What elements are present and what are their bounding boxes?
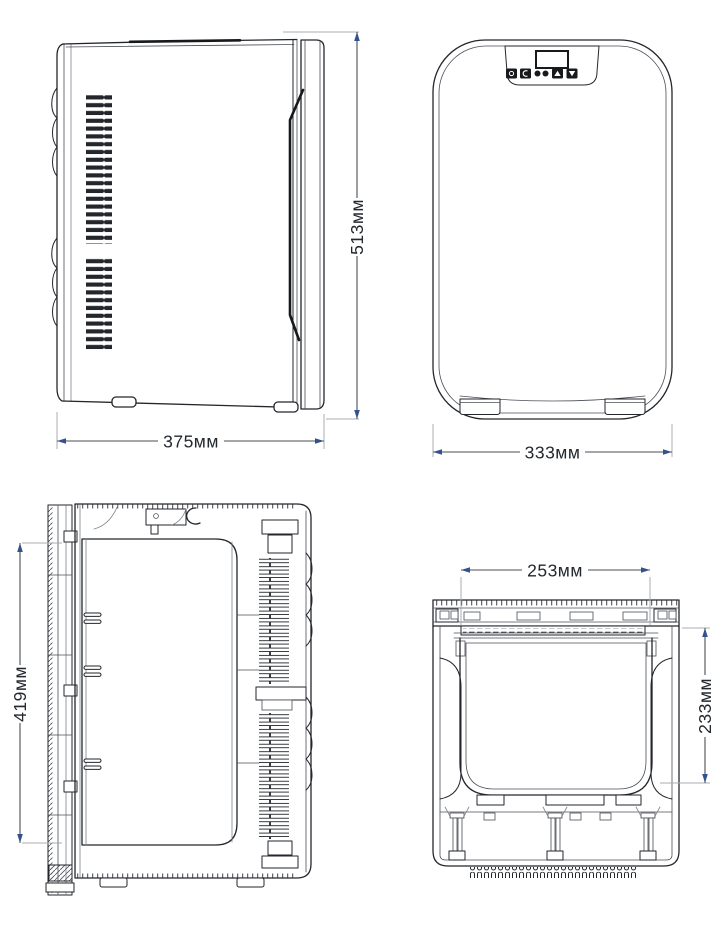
section-body [46, 504, 312, 895]
foot-right [605, 399, 645, 415]
hinge-bumps-top [52, 88, 57, 176]
latch-mechanism [94, 505, 200, 534]
vent-comb-teeth [470, 867, 638, 878]
top-view-drawing: 253мм 233мм [364, 465, 728, 929]
front-view-body [433, 40, 672, 419]
foot-left [100, 878, 127, 887]
mode-button-icon [520, 69, 531, 79]
dimension-side-width: 375мм [57, 412, 324, 452]
vent-slats-upper [86, 95, 112, 244]
top-inner-width-label: 253мм [527, 561, 583, 581]
dimension-top-inner-depth: 233мм [660, 628, 715, 783]
dimension-front-width: 333мм [433, 424, 672, 463]
control-panel [505, 46, 599, 85]
display-screen [536, 51, 568, 68]
power-button-icon [506, 69, 517, 79]
base-section [440, 807, 672, 878]
temp-up-button-icon [552, 69, 563, 79]
indicator-led-1 [535, 71, 541, 77]
foot-left [112, 397, 136, 407]
top-inner-depth-label: 233мм [695, 678, 715, 734]
indicator-led-2 [543, 71, 549, 77]
side-view-body [52, 40, 324, 413]
door-top-bar [433, 600, 679, 626]
side-width-label: 375мм [163, 432, 219, 452]
side-section-view-drawing: 419мм [0, 465, 364, 929]
foot-right [237, 878, 264, 887]
front-width-label: 333мм [525, 443, 581, 463]
side-view-drawing: 375мм 513мм [0, 0, 364, 465]
support-posts [445, 807, 660, 860]
foot-right [274, 402, 298, 412]
inner-liner-panel [82, 539, 237, 845]
vent-slats-lower [86, 257, 112, 351]
technical-drawing-canvas: 375мм 513мм [0, 0, 728, 929]
door-seal-bar [461, 626, 645, 635]
section-height-label: 419мм [10, 666, 30, 722]
front-view-drawing: 333мм [364, 0, 728, 465]
inner-compartment [454, 633, 658, 805]
door-profile [290, 40, 324, 409]
temp-down-button-icon [567, 69, 578, 79]
heat-sink-fins [237, 520, 306, 868]
shelf-brackets [84, 613, 101, 769]
door-section-strip [46, 505, 77, 895]
foot-left [460, 399, 500, 415]
hinge-bumps-bottom [52, 238, 57, 326]
top-view-body [433, 600, 679, 878]
side-height-label: 513мм [347, 199, 364, 255]
